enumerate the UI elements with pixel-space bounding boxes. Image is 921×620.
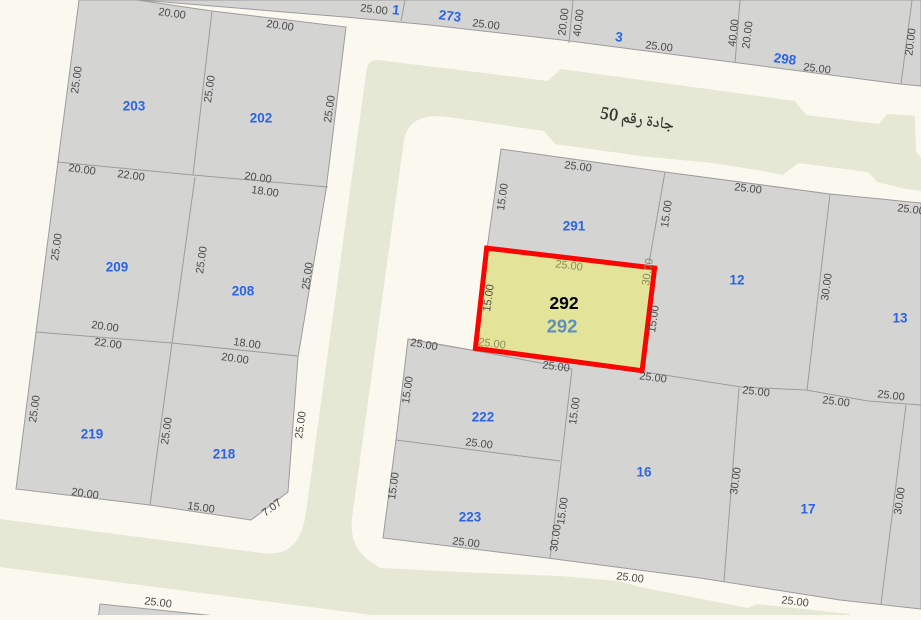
- svg-text:222: 222: [472, 410, 495, 425]
- svg-text:17: 17: [800, 502, 815, 517]
- svg-text:12: 12: [729, 273, 744, 288]
- svg-text:203: 203: [123, 99, 146, 114]
- svg-text:292: 292: [547, 316, 578, 337]
- svg-text:218: 218: [213, 447, 236, 462]
- svg-text:273: 273: [438, 7, 463, 25]
- svg-text:208: 208: [232, 284, 255, 299]
- svg-text:292: 292: [549, 293, 578, 313]
- svg-text:298: 298: [773, 50, 798, 68]
- svg-text:291: 291: [563, 219, 586, 234]
- svg-text:223: 223: [459, 510, 482, 525]
- svg-text:202: 202: [250, 111, 273, 126]
- svg-text:16: 16: [636, 465, 652, 480]
- svg-text:209: 209: [106, 260, 129, 275]
- svg-text:13: 13: [892, 311, 908, 326]
- svg-text:219: 219: [81, 427, 104, 442]
